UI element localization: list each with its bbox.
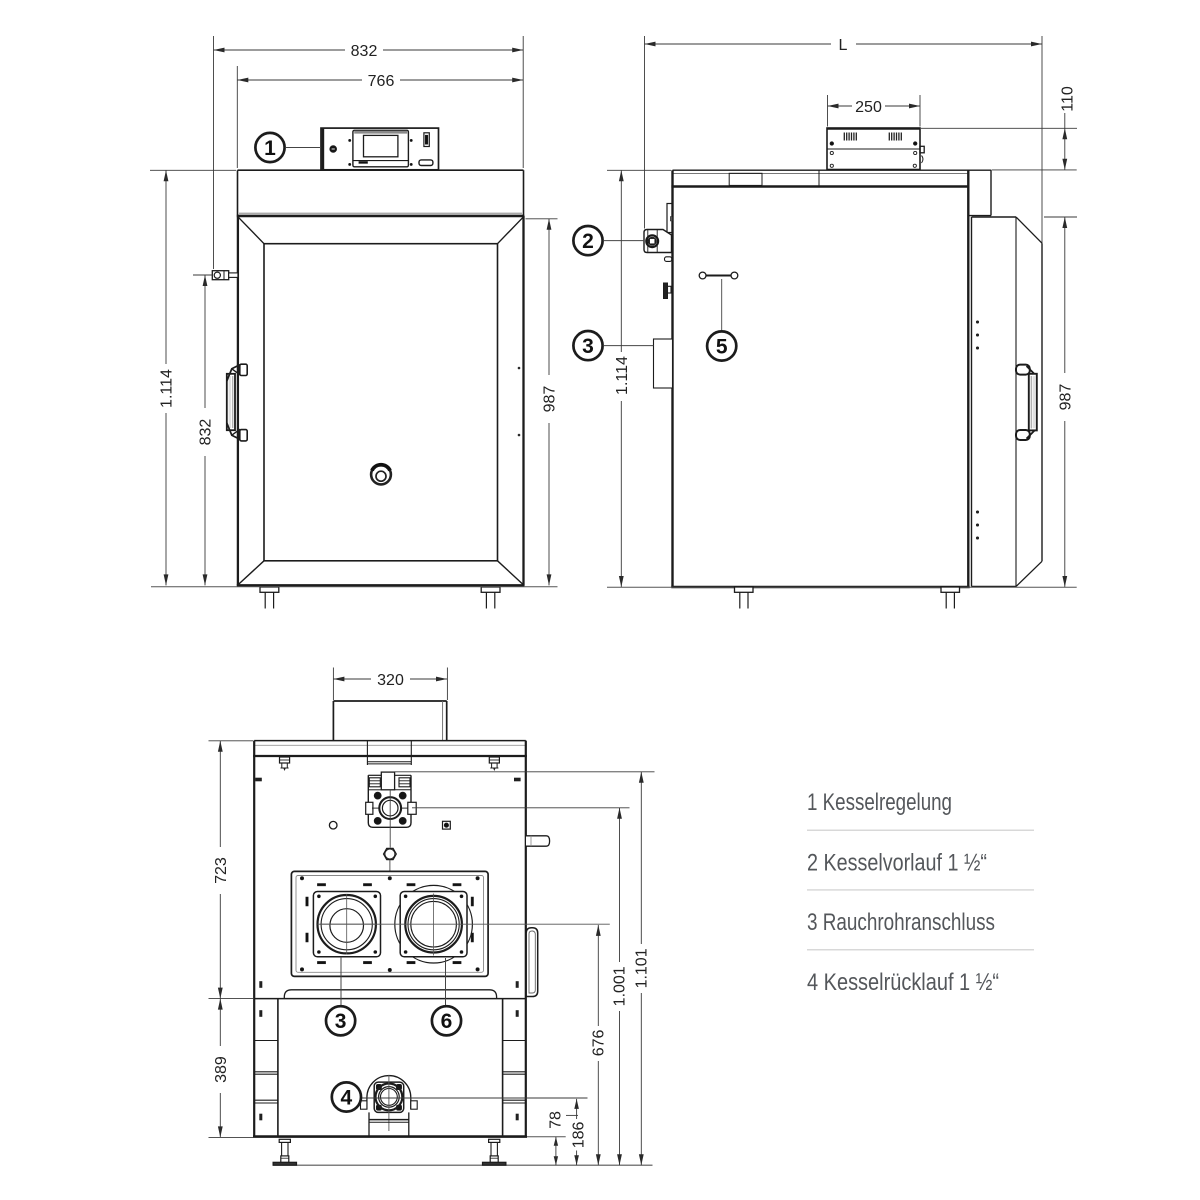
svg-text:389: 389 — [213, 1056, 230, 1083]
svg-text:5: 5 — [716, 335, 728, 358]
svg-text:3: 3 — [335, 1010, 347, 1033]
svg-text:1.114: 1.114 — [614, 356, 631, 395]
svg-text:987: 987 — [1057, 384, 1074, 411]
svg-text:4: 4 — [341, 1086, 353, 1109]
svg-text:3: 3 — [582, 335, 594, 358]
svg-text:1: 1 — [264, 137, 276, 160]
svg-text:832: 832 — [351, 43, 378, 60]
svg-text:1.114: 1.114 — [159, 369, 176, 408]
svg-text:250: 250 — [855, 99, 882, 116]
svg-text:1.001: 1.001 — [612, 966, 629, 1006]
svg-text:6: 6 — [441, 1010, 453, 1033]
svg-text:186: 186 — [571, 1121, 588, 1148]
svg-text:1.101: 1.101 — [633, 948, 650, 988]
svg-text:110: 110 — [1059, 86, 1076, 112]
svg-text:987: 987 — [542, 386, 559, 413]
svg-text:3 Rauchrohranschluss: 3 Rauchrohranschluss — [807, 909, 995, 936]
svg-text:766: 766 — [368, 73, 395, 90]
svg-text:L: L — [839, 37, 848, 54]
svg-text:723: 723 — [213, 857, 230, 884]
svg-text:676: 676 — [590, 1029, 607, 1056]
svg-text:78: 78 — [547, 1111, 564, 1129]
svg-text:2: 2 — [582, 230, 594, 253]
svg-text:832: 832 — [198, 419, 215, 446]
svg-text:2 Kesselvorlauf 1 ½“: 2 Kesselvorlauf 1 ½“ — [807, 849, 987, 876]
svg-text:4 Kesselrücklauf 1 ½“: 4 Kesselrücklauf 1 ½“ — [807, 969, 999, 996]
svg-text:1 Kesselregelung: 1 Kesselregelung — [807, 789, 952, 816]
svg-text:320: 320 — [377, 672, 404, 689]
